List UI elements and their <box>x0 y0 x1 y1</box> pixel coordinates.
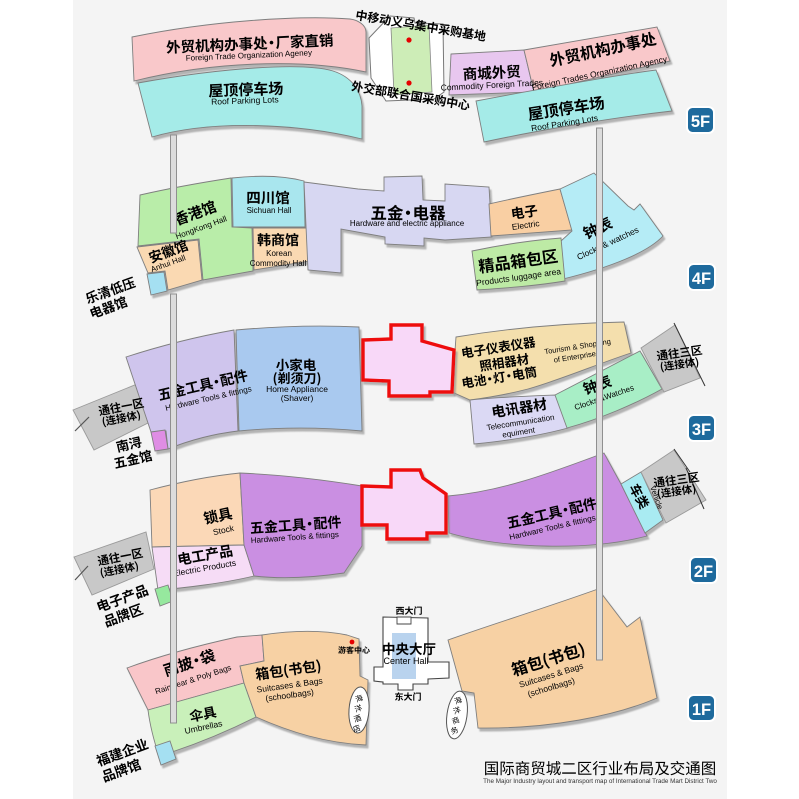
svg-text:Hardware and electric applianc: Hardware and electric appliance <box>350 219 465 228</box>
svg-text:1F: 1F <box>692 701 711 719</box>
svg-text:The Major Industry layout and: The Major Industry layout and transport … <box>483 778 717 785</box>
svg-text:3F: 3F <box>692 421 711 439</box>
svg-text:Sichuan Hall: Sichuan Hall <box>247 206 292 215</box>
svg-text:2F: 2F <box>694 563 713 581</box>
svg-text:Korean: Korean <box>266 249 292 258</box>
svg-text:Center Hall: Center Hall <box>384 656 429 666</box>
svg-text:4F: 4F <box>692 270 711 288</box>
svg-text:Commodity Hall: Commodity Hall <box>250 259 307 268</box>
svg-text:(Shaver): (Shaver) <box>281 393 314 403</box>
svg-text:5F: 5F <box>691 113 710 131</box>
